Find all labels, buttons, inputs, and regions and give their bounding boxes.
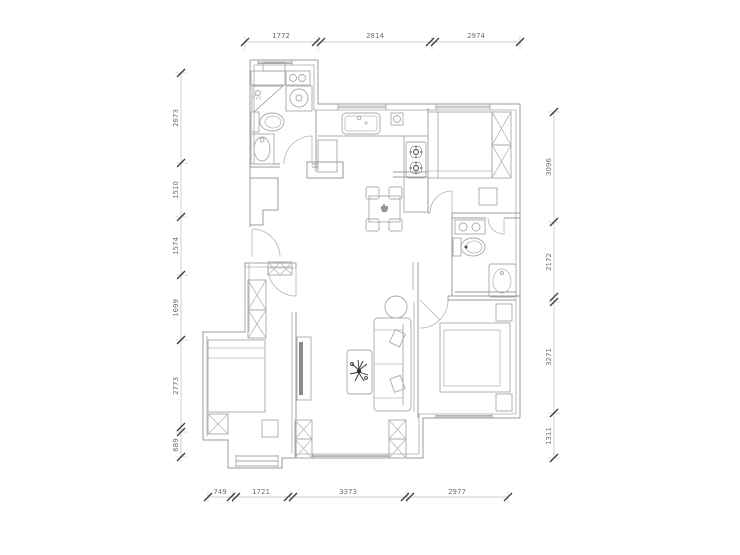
dim-label: 2773: [172, 377, 180, 395]
door-swing-icon: [252, 229, 280, 257]
window-icon: [436, 414, 492, 418]
doors: [252, 136, 504, 328]
dimension-left: 2673 1510 1574 1699 2773 689: [172, 69, 188, 461]
sink-icon: [251, 134, 274, 164]
nightstand-icon: [496, 304, 512, 321]
dim-label: 3271: [545, 348, 553, 366]
dimension-right: 3096 2172 3271 1311: [545, 108, 561, 462]
counter-icon: [318, 140, 337, 172]
sofa-icon: [374, 318, 411, 411]
dim-label: 2974: [467, 32, 485, 40]
dim-label: 1699: [172, 299, 180, 317]
window-icon: [338, 104, 386, 110]
bed-icon: [208, 340, 265, 412]
stool-icon: [262, 420, 278, 437]
dim-label: 689: [172, 438, 180, 451]
floor-plan-page: 1772 2814 2974 2673 1510 1574 1699 2773 …: [0, 0, 740, 555]
door-swing-icon: [420, 300, 448, 328]
bed-icon: [428, 112, 492, 178]
shower-icon: [252, 86, 283, 112]
nightstand-icon: [479, 188, 497, 205]
dim-label: 1721: [252, 488, 270, 496]
dim-label: 3096: [545, 158, 553, 176]
window-icon: [313, 454, 389, 458]
toilet-icon: [251, 112, 284, 132]
counter-unit-icon: [391, 113, 403, 125]
floor-plan-canvas: 1772 2814 2974 2673 1510 1574 1699 2773 …: [0, 0, 740, 555]
stove-icon: [406, 142, 426, 178]
washing-machine-icon: [286, 86, 312, 111]
bathroom-2: [453, 220, 516, 297]
cabinet-icon: [251, 63, 285, 85]
kitchen-sink-icon: [342, 113, 380, 134]
dining-table-icon: [369, 196, 400, 222]
bedroom-top-right: [428, 112, 511, 205]
dim-label: 2814: [366, 32, 384, 40]
coffee-table-plant-icon: [347, 350, 372, 394]
vanity-icon: [455, 220, 485, 234]
bed-icon: [440, 323, 510, 392]
laundry-sink-icon: [286, 71, 310, 85]
dim-label: 1772: [272, 32, 290, 40]
cabinet-x-icon: [295, 420, 312, 458]
bathroom-1: [251, 63, 312, 164]
nightstand-icon: [208, 414, 228, 434]
window-icon: [236, 455, 278, 467]
toilet-icon: [453, 238, 485, 256]
hatched-cabinet-icon: [268, 262, 292, 275]
door-swing-icon: [488, 218, 504, 234]
dim-label: 749: [213, 488, 226, 496]
nightstand-icon: [496, 394, 512, 411]
cabinet-x-icon: [389, 420, 406, 458]
dim-label: 3373: [339, 488, 357, 496]
dim-label: 2172: [545, 253, 553, 271]
bedroom-bottom-right: [440, 304, 512, 411]
bedroom-left: [208, 262, 292, 437]
tv-icon: [297, 337, 311, 400]
dim-label: 1510: [172, 181, 180, 199]
living-room: [295, 296, 411, 458]
wardrobe-icon: [248, 280, 266, 338]
dining-area: [366, 187, 402, 231]
door-swing-icon: [284, 136, 312, 164]
window-icon: [436, 104, 490, 110]
chair-icon: [366, 219, 379, 231]
wardrobe-icon: [492, 112, 511, 178]
dim-label: 1311: [545, 427, 553, 445]
chair-icon: [366, 187, 379, 199]
dim-label: 1574: [172, 237, 180, 255]
door-swing-icon: [430, 191, 452, 213]
round-table-icon: [385, 296, 407, 318]
dim-label: 2673: [172, 109, 180, 127]
dimension-bottom: 749 1721 3373 2977: [204, 488, 512, 503]
dimension-top: 1772 2814 2974: [241, 32, 524, 50]
dim-label: 2977: [448, 488, 466, 496]
